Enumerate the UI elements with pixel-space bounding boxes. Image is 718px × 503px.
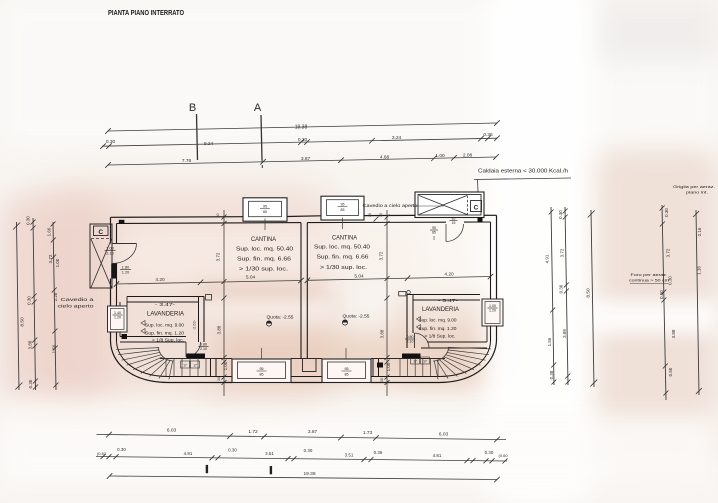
svg-text:0.30: 0.30 [27,296,32,305]
svg-text:B: B [189,102,196,114]
svg-text:CANTINA: CANTINA [251,236,277,243]
svg-text:1.56: 1.56 [52,344,57,353]
svg-text:19.38: 19.38 [303,471,315,477]
svg-text:95: 95 [345,367,349,371]
svg-text:Sup. loc. mq. 9.00: Sup. loc. mq. 9.00 [419,318,458,323]
svg-text:0.50: 0.50 [659,290,664,299]
svg-text:(0.60: (0.60 [498,453,508,458]
svg-text:7.76: 7.76 [182,158,192,164]
svg-text:17: 17 [193,364,197,368]
svg-text:15: 15 [452,221,456,225]
svg-text:0.30: 0.30 [298,137,308,143]
svg-text:3.88: 3.88 [28,340,33,349]
svg-text:30: 30 [368,213,372,217]
svg-text:95: 95 [341,203,345,207]
svg-text:3.88: 3.88 [671,329,676,338]
svg-text:1.73: 1.73 [363,430,373,436]
svg-text:C: C [98,229,103,236]
svg-text:CANTINA: CANTINA [332,235,358,242]
svg-text:0.36: 0.36 [374,450,383,455]
svg-text:6.03: 6.03 [167,428,177,434]
svg-text:0.30: 0.30 [117,447,126,452]
svg-text:0.50: 0.50 [668,367,673,376]
svg-text:8.50: 8.50 [20,317,26,327]
svg-text:Foro per aeraz.: Foro per aeraz. [631,272,668,277]
svg-text:1.66: 1.66 [47,227,52,236]
svg-text:3.51: 3.51 [265,451,274,456]
svg-text:Griglia per aeraz.: Griglia per aeraz. [673,184,715,189]
svg-text:Cavedio a cielo aperto: Cavedio a cielo aperto [363,203,419,208]
svg-text:2.10: 2.10 [407,340,414,344]
svg-text:0.30: 0.30 [106,139,116,145]
svg-text:A: A [254,102,262,114]
svg-text:(0.62: (0.62 [97,451,107,456]
svg-text:0.30: 0.30 [664,208,669,217]
svg-text:0.30: 0.30 [28,379,33,388]
svg-text:3.72: 3.72 [48,254,53,263]
svg-text:3.88: 3.88 [562,329,567,338]
svg-text:0.30: 0.30 [559,284,564,293]
svg-text:2.16: 2.16 [697,227,702,236]
svg-text:0.30: 0.30 [228,448,237,453]
svg-text:Sup. loc. mq. 50.40: Sup. loc. mq. 50.40 [236,247,293,253]
svg-text:2.10: 2.10 [106,251,113,255]
svg-text:6.03: 6.03 [439,432,449,438]
svg-text:4.81: 4.81 [433,453,442,458]
svg-text:LAVANDERIA: LAVANDERIA [147,312,184,318]
svg-text:0.36: 0.36 [483,132,493,138]
svg-text:Quota: -2.55: Quota: -2.55 [267,315,295,320]
svg-text:19.38: 19.38 [295,125,308,131]
svg-text:3.72: 3.72 [666,248,671,257]
svg-text:piano int.: piano int. [686,190,708,195]
svg-text:- 3.47-: - 3.47- [155,302,176,307]
svg-text:C: C [474,204,479,211]
svg-text:3.87: 3.87 [301,156,311,162]
svg-text:4.91: 4.91 [545,254,550,263]
svg-text:cielo aperto: cielo aperto [58,304,95,309]
svg-text:30: 30 [380,378,384,382]
svg-text:1.00: 1.00 [106,246,113,250]
svg-text:2.08: 2.08 [463,153,473,159]
svg-text:85: 85 [260,373,264,377]
svg-text:95: 95 [263,204,267,208]
svg-text:Sup. loc. mq. 50.40: Sup. loc. mq. 50.40 [314,245,370,251]
svg-text:Sup. loc. mq. 9.00: Sup. loc. mq. 9.00 [145,323,185,328]
svg-text:4.20: 4.20 [444,271,454,277]
svg-text:3.88: 3.88 [380,329,385,338]
svg-text:1.00: 1.00 [386,362,391,371]
svg-text:0.30: 0.30 [304,448,313,453]
svg-text:17: 17 [423,360,427,364]
svg-text:Sup. fin. mq. 6.66: Sup. fin. mq. 6.66 [237,257,291,263]
svg-text:85: 85 [432,230,436,234]
svg-text:0.38: 0.38 [549,370,554,379]
svg-text:5.04: 5.04 [354,273,364,279]
svg-text:1.20: 1.20 [489,309,496,313]
svg-text:3.72: 3.72 [379,251,384,260]
svg-text:1.00: 1.00 [435,153,445,159]
svg-text:> 1/30 sup. loc.: > 1/30 sup. loc. [239,267,289,273]
svg-text:Sup. fin. mq. 6.66: Sup. fin. mq. 6.66 [317,255,369,261]
svg-text:4.20: 4.20 [155,277,165,283]
svg-text:0.30: 0.30 [558,210,563,219]
svg-text:4.81: 4.81 [184,451,193,456]
svg-text:3.88: 3.88 [217,325,222,334]
svg-text:0.30: 0.30 [485,450,494,455]
svg-text:95: 95 [432,226,436,230]
svg-text:0.80: 0.80 [200,342,207,346]
svg-text:PIANTA PIANO INTERRATO: PIANTA PIANO INTERRATO [108,8,184,17]
svg-text:- 3.47-: - 3.47- [438,298,459,303]
svg-text:85: 85 [345,373,349,377]
svg-text:3.72: 3.72 [560,248,565,257]
svg-text:> 1/8 Sup. loc.: > 1/8 Sup. loc. [152,338,184,343]
svg-text:3.72: 3.72 [216,252,221,261]
svg-text:Quota: -2.55: Quota: -2.55 [343,314,371,319]
svg-text:1.00: 1.00 [489,304,496,308]
svg-text:1.80: 1.80 [122,265,129,269]
svg-text:0.30: 0.30 [26,216,31,225]
svg-text:1.40: 1.40 [114,311,121,315]
svg-text:1.00: 1.00 [223,361,228,370]
svg-text:9.24: 9.24 [204,141,214,147]
svg-text:1.20: 1.20 [114,316,121,320]
svg-text:3.51: 3.51 [345,453,354,458]
svg-text:85: 85 [263,210,267,214]
svg-text:3.87: 3.87 [308,429,318,435]
svg-text:0.80: 0.80 [407,335,414,339]
svg-text:2.28: 2.28 [53,292,58,301]
svg-text:17: 17 [413,360,417,364]
svg-text:Sup. fin. mq. 1.20: Sup. fin. mq. 1.20 [419,326,458,331]
svg-text:3.24: 3.24 [392,135,402,141]
svg-text:85: 85 [341,208,345,212]
svg-text:4.68: 4.68 [380,155,390,161]
svg-text:1.20: 1.20 [122,270,129,274]
svg-text:Caldaia esterna < 30.000 Kcal.: Caldaia esterna < 30.000 Kcal./h [478,169,568,175]
svg-text:1.56: 1.56 [547,337,552,346]
svg-text:Sup. fin. mq. 1.20: Sup. fin. mq. 1.20 [145,331,185,336]
svg-text:1.16: 1.16 [697,266,702,275]
svg-text:30: 30 [217,377,221,381]
svg-text:Cavedio a: Cavedio a [61,297,95,302]
svg-text:1.72: 1.72 [248,429,258,435]
svg-text:> 1/30 sup. loc.: > 1/30 sup. loc. [320,265,368,271]
svg-text:85: 85 [452,216,456,220]
svg-text:2.10: 2.10 [200,347,207,351]
svg-text:-2.62-: -2.62- [192,319,197,330]
svg-text:1.00: 1.00 [55,258,60,267]
svg-text:30: 30 [216,214,220,218]
svg-text:8.50: 8.50 [586,288,592,298]
svg-text:5.04: 5.04 [246,275,256,281]
svg-text:95: 95 [260,367,264,371]
svg-text:17: 17 [183,364,187,368]
svg-text:continua > 50 cm: continua > 50 cm [629,278,670,283]
svg-text:30: 30 [379,213,383,217]
svg-text:> 1/8 Sup. loc.: > 1/8 Sup. loc. [425,334,456,339]
svg-text:LAVANDERIA: LAVANDERIA [422,307,459,313]
